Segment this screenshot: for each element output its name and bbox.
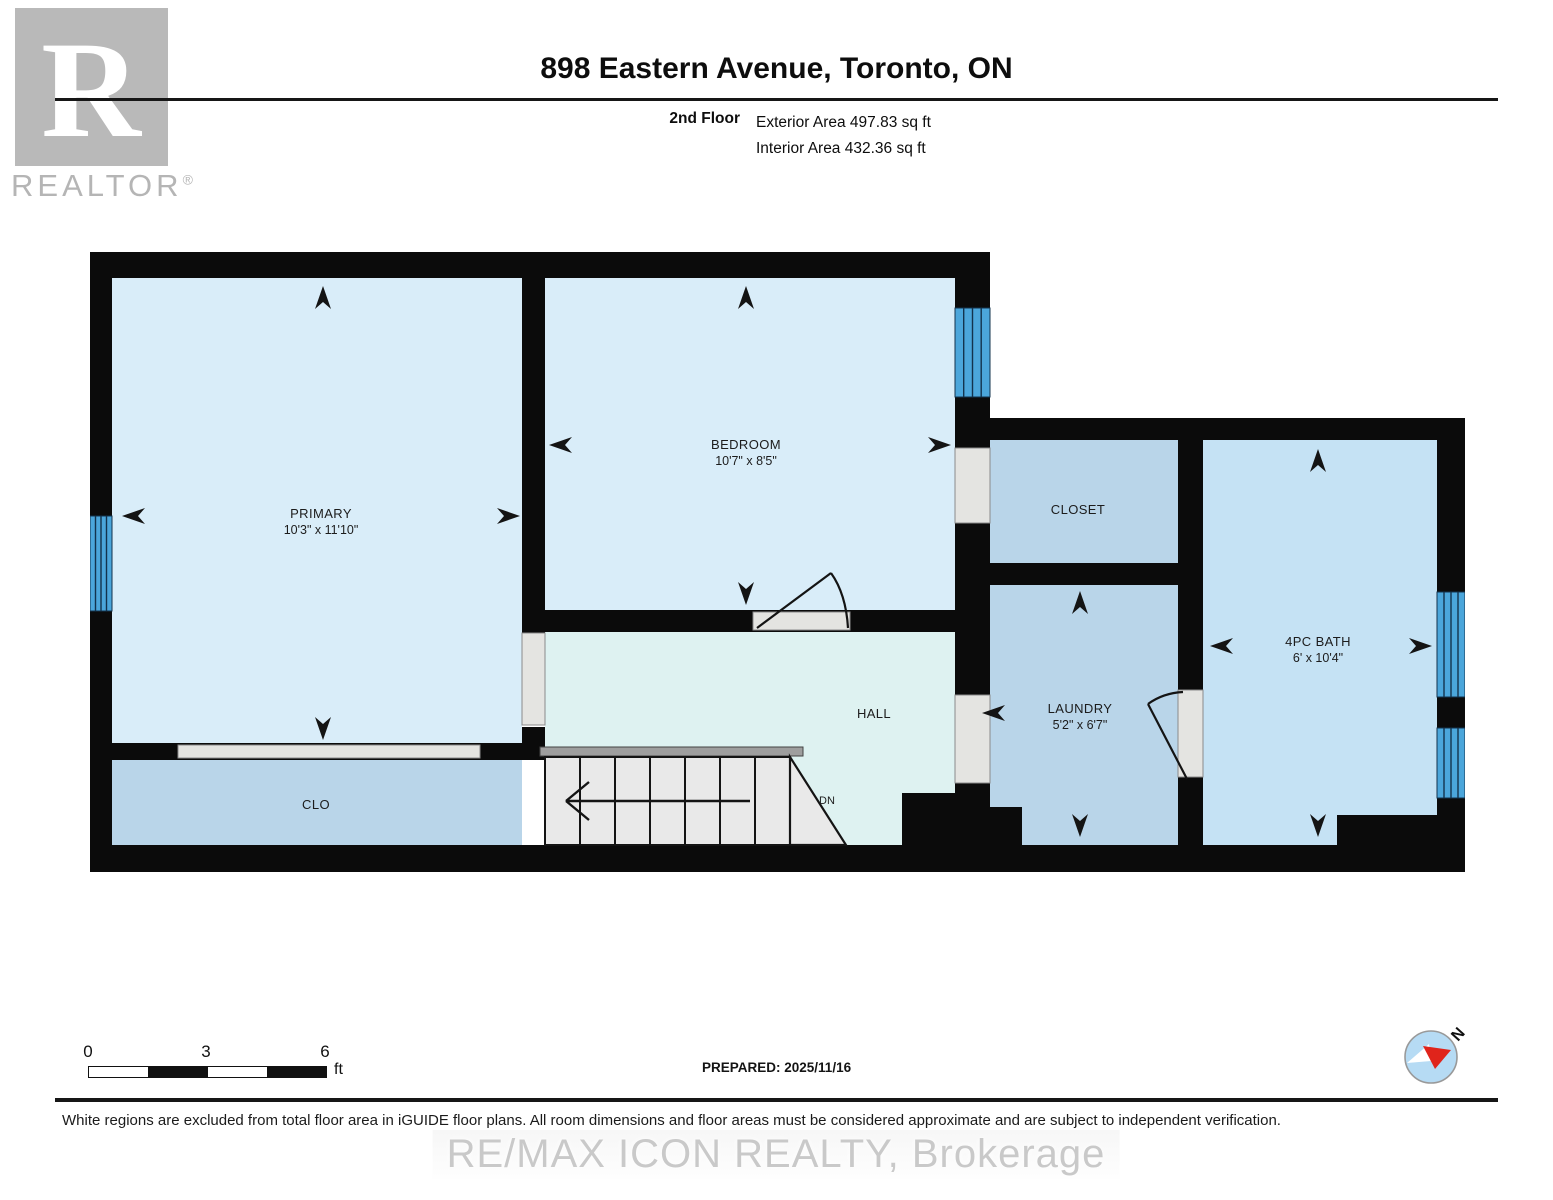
wall [1337, 815, 1465, 872]
disclaimer-text: White regions are excluded from total fl… [62, 1112, 1281, 1129]
dims-bedroom: 10'7" x 8'5" [715, 454, 777, 468]
wall [522, 252, 545, 633]
label-primary: PRIMARY [290, 506, 352, 521]
compass: N [1400, 1024, 1470, 1095]
wall [968, 418, 1465, 440]
prepared-date: PREPARED: 2025/11/16 [702, 1060, 851, 1075]
scale-tick-0: 0 [83, 1042, 92, 1062]
interior-area: Interior Area 432.36 sq ft [756, 136, 931, 162]
opening-bedroom-closet [955, 448, 990, 523]
scale-segment [148, 1067, 207, 1077]
floor-label: 2nd Floor [580, 110, 740, 128]
dims-primary: 10'3" x 11'10" [284, 523, 359, 537]
brokerage-watermark: RE/MAX ICON REALTY, Brokerage [433, 1130, 1120, 1179]
opening-laundry-bath-door [1178, 690, 1203, 777]
stair-rail [540, 747, 803, 756]
title-divider [55, 98, 1498, 101]
label-hall: HALL [857, 706, 891, 721]
realtor-wordmark: REALTOR® [11, 168, 197, 204]
wall [1178, 440, 1203, 845]
label-bath: 4PC BATH [1285, 634, 1351, 649]
realtor-logo: R [15, 8, 168, 171]
realtor-logo-icon: R [15, 8, 168, 166]
scale-unit: ft [334, 1061, 343, 1079]
label-closet: CLOSET [1051, 502, 1105, 517]
wall [968, 807, 1022, 872]
wall [990, 563, 1178, 585]
label-laundry: LAUNDRY [1048, 701, 1113, 716]
logo-letter: R [41, 13, 142, 166]
dims-laundry: 5'2" x 6'7" [1053, 718, 1108, 732]
area-summary: Exterior Area 497.83 sq ft Interior Area… [756, 110, 931, 162]
opening-primary-clo [178, 745, 480, 758]
registered-mark: ® [183, 172, 197, 188]
scale-tick-6: 6 [320, 1042, 329, 1062]
footer-divider [55, 1098, 1498, 1102]
page-title: 898 Eastern Avenue, Toronto, ON [0, 52, 1553, 86]
opening-primary-hall [522, 633, 545, 725]
scale-segment [208, 1067, 267, 1077]
exterior-area: Exterior Area 497.83 sq ft [756, 110, 931, 136]
wall [545, 610, 955, 632]
scale-tick-3: 3 [201, 1042, 210, 1062]
floorplan: PRIMARY 10'3" x 11'10" BEDROOM 10'7" x 8… [90, 252, 1465, 872]
dims-bath: 6' x 10'4" [1293, 651, 1343, 665]
label-clo: CLO [302, 797, 330, 812]
scale-bar [88, 1066, 327, 1078]
wall [90, 845, 982, 872]
opening-hall-laundry [955, 695, 990, 783]
scale-segment [267, 1067, 326, 1077]
label-bedroom: BEDROOM [711, 437, 781, 452]
scale-segment [89, 1067, 148, 1077]
realtor-wordmark-text: REALTOR [11, 168, 183, 203]
wall [902, 793, 957, 845]
label-stairs-dn: DN [819, 795, 835, 807]
